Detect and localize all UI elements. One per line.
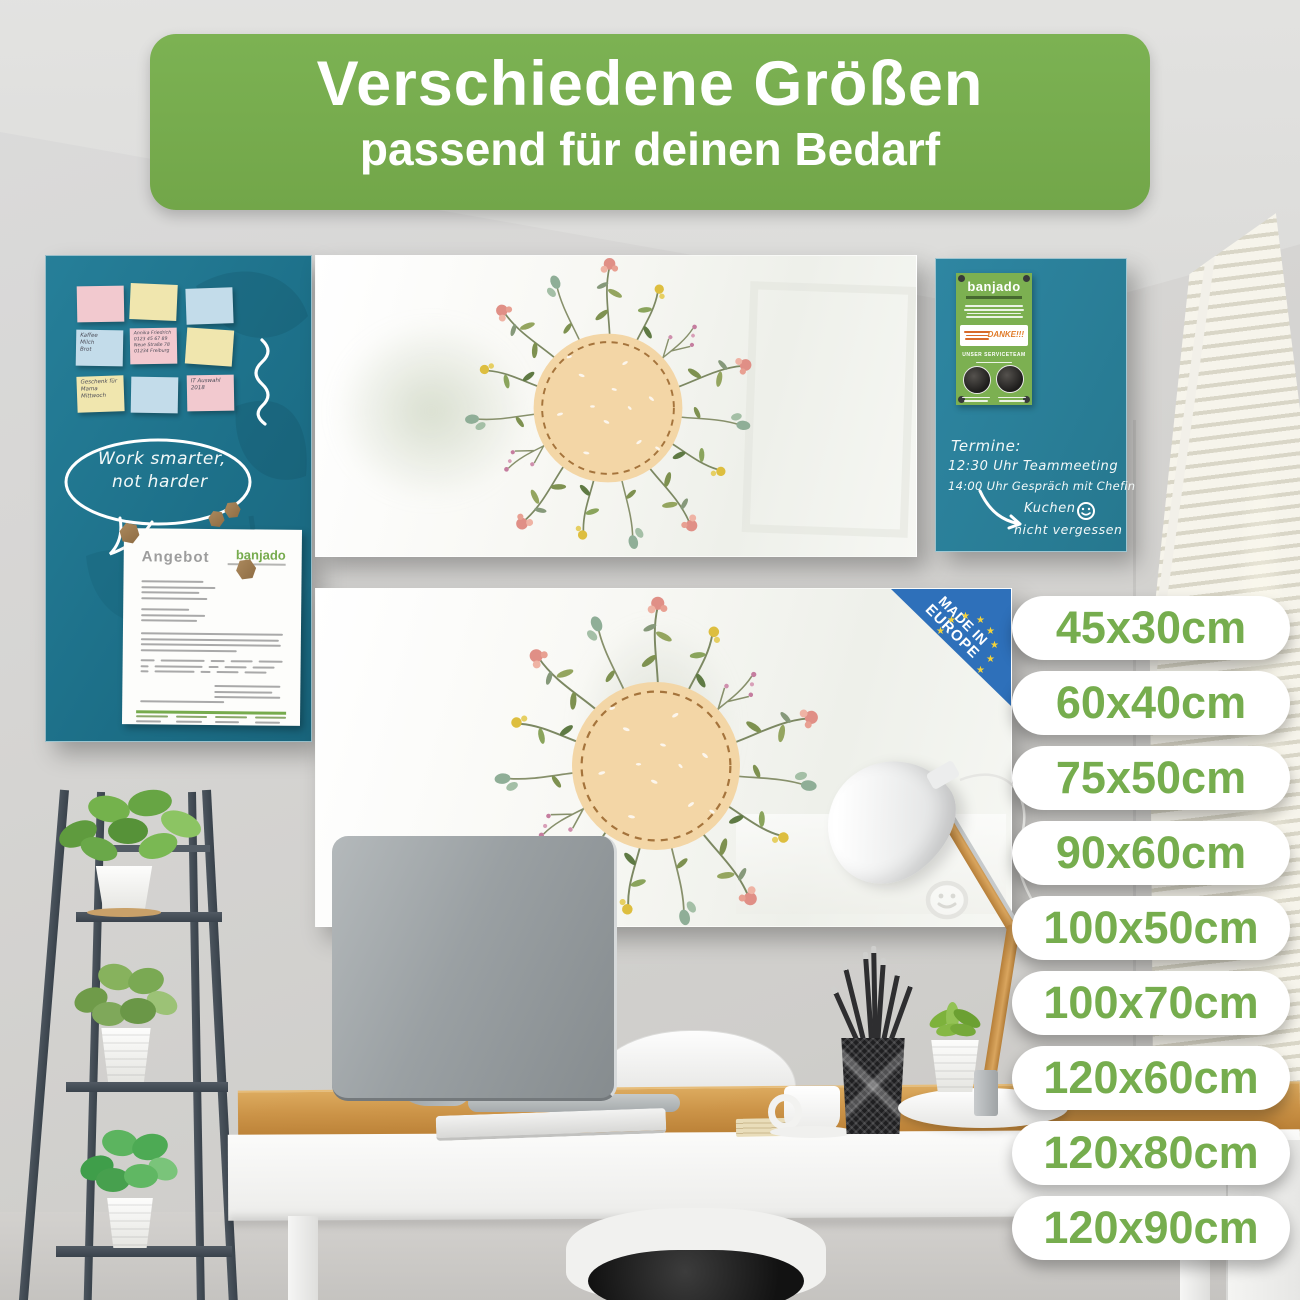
- frame-reflection: [742, 281, 917, 538]
- pencil: [871, 946, 878, 1042]
- flyer-footer-columns: [962, 395, 1026, 404]
- handwriting-meeting: 12:30 Uhr Teammeeting: [948, 459, 1118, 474]
- eu-star-icon: ★: [976, 666, 985, 676]
- made-in-europe-badge: MADE IN EUROPE ★ ★ ★ ★ ★ ★ ★ ★ ★ ★ ★ ★: [891, 589, 1011, 706]
- size-option: 120x80cm: [1012, 1121, 1290, 1185]
- eu-star-icon: ★: [986, 627, 995, 637]
- magnetic-glass-board-right: banjado DANKE!!! UNSER SERVICETEAM: [935, 258, 1127, 552]
- size-option: 90x60cm: [1012, 821, 1290, 885]
- sticky-note: [129, 283, 178, 321]
- size-option: 100x50cm: [1012, 896, 1290, 960]
- plant-leaf: [124, 1164, 158, 1188]
- floral-wreath: [453, 255, 763, 557]
- chair-cushion: [588, 1250, 804, 1300]
- eu-star-icon: ★: [976, 616, 985, 626]
- eu-star-icon: ★: [947, 616, 956, 626]
- flyer-team-heading: UNSER SERVICETEAM: [956, 352, 1032, 358]
- totals-block: [214, 685, 284, 702]
- sticky-note: IT Auswahl 2018: [187, 375, 235, 412]
- cup-saucer: [770, 1126, 854, 1138]
- plant-leaf: [108, 818, 148, 844]
- flyer-text-lines: [964, 303, 1024, 320]
- banjado-flyer: banjado DANKE!!! UNSER SERVICETEAM: [956, 273, 1032, 405]
- size-option: 120x90cm: [1012, 1196, 1290, 1260]
- squiggle-doodle: [252, 338, 278, 428]
- flyer-thanks-text: DANKE!!!: [988, 330, 1024, 339]
- recipient-block: [141, 608, 221, 626]
- bubble-text-line2: not harder: [112, 472, 208, 492]
- document-title: Angebot: [142, 548, 210, 566]
- eu-star-icon: ★: [961, 670, 970, 680]
- banner-title: Verschiedene Größen: [150, 48, 1150, 120]
- smiley-icon: [1076, 501, 1096, 521]
- lamp-base: [974, 1070, 998, 1116]
- eu-star-icon: ★: [990, 641, 999, 651]
- size-option: 120x60cm: [1012, 1046, 1290, 1110]
- sticky-note: Kaffee Milch Brot: [76, 330, 124, 367]
- sticky-note: [185, 327, 234, 366]
- body-paragraph: [141, 632, 285, 656]
- pen-holder: [840, 1038, 906, 1134]
- dog-photo: [963, 366, 991, 394]
- item-table: [140, 659, 284, 677]
- dog-photo: [996, 365, 1024, 393]
- cup-handle: [768, 1094, 802, 1130]
- eu-star-icon: ★: [936, 627, 945, 637]
- sticky-note: Annika Friedrich 0123 45 67 89 Neue Stra…: [130, 328, 178, 365]
- glass-board-small: [315, 255, 917, 557]
- flyer-white-band: DANKE!!!: [960, 325, 1028, 346]
- sticky-note: [131, 377, 179, 414]
- plant-leaf: [120, 998, 156, 1024]
- handwriting-vergessen: nicht vergessen: [1014, 522, 1123, 537]
- eu-star-icon: ★: [961, 612, 970, 622]
- magnetic-glass-board-left: Kaffee Milch Brot Annika Friedrich 0123 …: [45, 255, 312, 742]
- banner-subtitle: passend für deinen Bedarf: [150, 122, 1150, 176]
- eu-star-icon: ★: [986, 655, 995, 665]
- eu-star-icon: ★: [932, 641, 941, 651]
- handwriting-termine: Termine:: [951, 437, 1021, 455]
- footer-columns: [136, 715, 286, 727]
- size-option: 45x30cm: [1012, 596, 1290, 660]
- desk-leg: [288, 1216, 318, 1300]
- sticky-note: [77, 286, 125, 323]
- flyer-team-sub: [976, 362, 1012, 363]
- eu-star-icon: ★: [936, 656, 945, 666]
- product-scene: Kaffee Milch Brot Annika Friedrich 0123 …: [0, 0, 1300, 1300]
- eu-star-icon: ★: [947, 666, 956, 676]
- flyer-tagline: [966, 296, 1022, 299]
- closing-lines: [140, 700, 230, 707]
- monitor-back: [332, 836, 617, 1101]
- headline-banner: Verschiedene Größen passend für deinen B…: [150, 34, 1150, 210]
- sticky-note: Geschenk für Mama Mittwoch: [76, 375, 124, 413]
- sticky-note: [185, 287, 233, 325]
- address-block: [141, 580, 221, 603]
- pot-saucer: [87, 908, 161, 917]
- handwriting-kuchen: Kuchen: [1024, 501, 1076, 516]
- bubble-text-line1: Work smarter,: [98, 449, 226, 469]
- offer-document: Angebot banjado: [122, 528, 302, 726]
- size-option: 75x50cm: [1012, 746, 1290, 810]
- footer-rule: [136, 710, 286, 714]
- size-option: 60x40cm: [1012, 671, 1290, 735]
- logo-tagline: [228, 563, 286, 566]
- size-option: 100x70cm: [1012, 971, 1290, 1035]
- shelf-board: [66, 1082, 228, 1092]
- plant-pot: [98, 1028, 154, 1082]
- flyer-brand: banjado: [956, 279, 1032, 294]
